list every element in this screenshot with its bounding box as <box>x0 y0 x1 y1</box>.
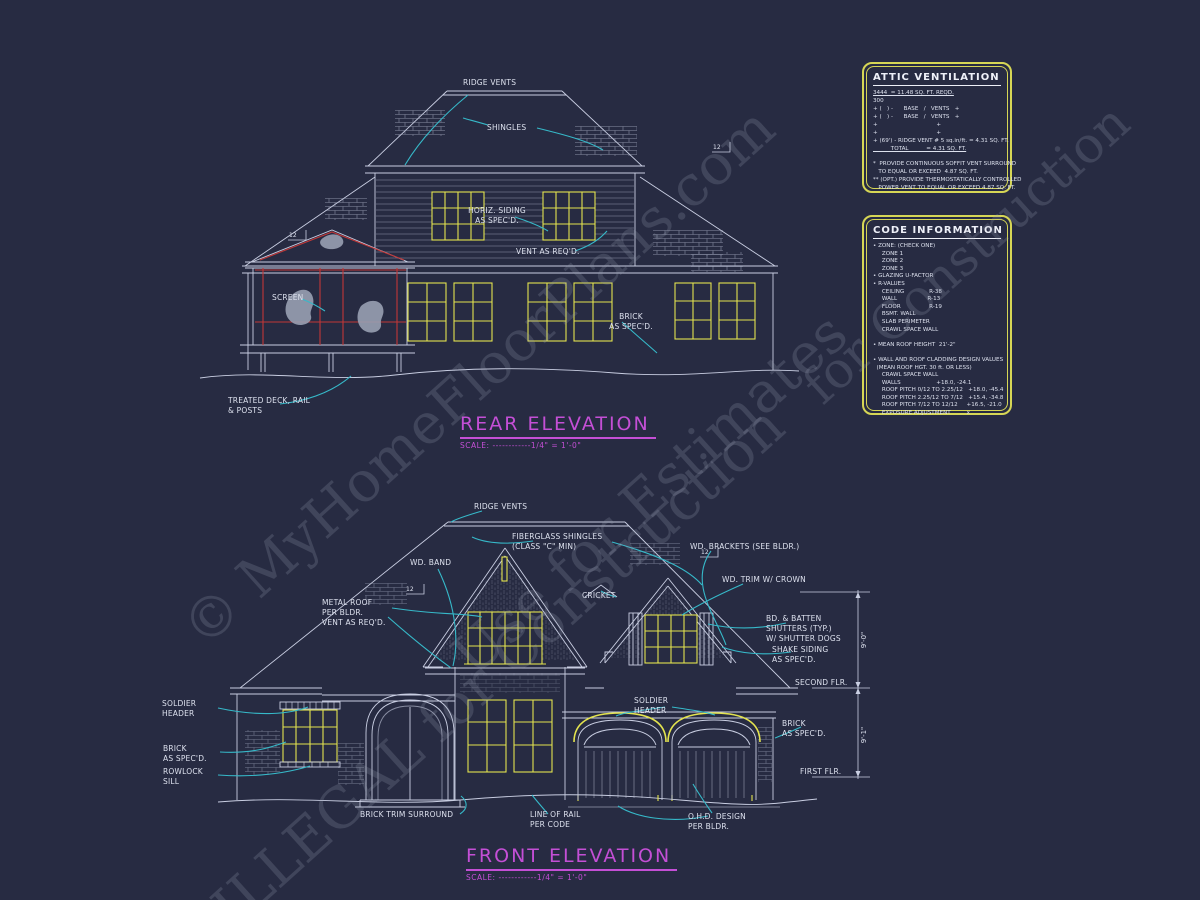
code-line: ROOF PITCH 7/12 TO 12/12 +16.5, -21.0 <box>873 402 1001 410</box>
rear-scale-text: SCALE: ------------1/4" = 1'-0" <box>460 441 656 450</box>
code-line: • R-VALUES <box>873 281 1001 289</box>
label-first-flr: FIRST FLR. <box>800 767 841 777</box>
label-ridge-vents-front: RIDGE VENTS <box>474 502 527 512</box>
dim-second-floor-height: 9'-0" <box>860 632 868 649</box>
attic-line: 3444 = 11.48 SQ. FT. REQD. <box>873 90 1001 98</box>
attic-line: ** (OPT.) PROVIDE THERMOSTATICALLY CONTR… <box>873 177 1001 185</box>
attic-line: + + <box>873 122 1001 130</box>
attic-line: * PROVIDE CONTINUOUS SOFFIT VENT SURROUN… <box>873 161 1001 169</box>
code-line: • GLAZING U-FACTOR <box>873 273 1001 281</box>
code-line: EXPOSURE ADJUSTMENT x <box>873 410 1001 418</box>
label-brick-left: BRICK AS SPEC'D. <box>163 744 207 764</box>
label-brick-trim: BRICK TRIM SURROUND <box>360 810 453 820</box>
label-second-flr: SECOND FLR. <box>795 678 847 688</box>
code-line: (MEAN ROOF HGT. 30 ft. OR LESS) <box>873 365 1001 373</box>
attic-ventilation-box: ATTIC VENTILATION 3444 = 11.48 SQ. FT. R… <box>862 62 1012 193</box>
pitch-label: 12 <box>289 232 297 239</box>
attic-line: TO EQUAL OR EXCEED 4.87 SQ. FT. <box>873 169 1001 177</box>
pitch-label: 12 <box>713 144 721 151</box>
blueprint-sheet: 12 12 RIDGE VENTS SHINGLES HORIZ. SIDING… <box>0 0 1200 900</box>
code-line: ROOF PITCH 2.25/12 TO 7/12 +15.4, -34.8 <box>873 395 1001 403</box>
pitch-label: 12 <box>406 586 414 593</box>
code-line: • WALL AND ROOF CLADDING DESIGN VALUES <box>873 357 1001 365</box>
attic-line: POWER VENT TO EQUAL OR EXCEED 4.87 SQ. F… <box>873 185 1001 193</box>
code-line: • MEAN ROOF HEIGHT 21'-2" <box>873 342 1001 350</box>
code-information-box: CODE INFORMATION • ZONE: (CHECK ONE) ZON… <box>862 215 1012 415</box>
label-bd-batten-shutters: BD. & BATTEN SHUTTERS (TYP.) W/ SHUTTER … <box>766 614 841 643</box>
front-title-text: FRONT ELEVATION <box>466 845 677 871</box>
attic-line: + (69') - RIDGE VENT # 5 sq.in/ft. = 4.3… <box>873 138 1001 146</box>
label-brick-rear: BRICK AS SPEC'D. <box>608 312 654 332</box>
attic-line: + ( ) - BASE / VENTS + <box>873 114 1001 122</box>
front-elevation-title-block: FRONT ELEVATION SCALE: ------------1/4" … <box>466 845 677 882</box>
code-line: FLOOR R-19 <box>873 304 1001 312</box>
attic-ventilation-lines: 3444 = 11.48 SQ. FT. REQD.300+ ( ) - BAS… <box>873 90 1001 193</box>
attic-ventilation-title: ATTIC VENTILATION <box>873 72 1001 86</box>
rear-elevation-title-block: REAR ELEVATION SCALE: ------------1/4" =… <box>460 413 656 450</box>
code-line: ZONE 1 <box>873 251 1001 259</box>
code-line: WALLS +18.0, -24.1 <box>873 380 1001 388</box>
label-fiberglass-shingles: FIBERGLASS SHINGLES (CLASS "C" MIN) <box>512 532 602 552</box>
label-cricket: CRICKET <box>582 591 616 601</box>
attic-line: + + <box>873 130 1001 138</box>
code-information-title: CODE INFORMATION <box>873 225 1001 239</box>
code-information-lines: • ZONE: (CHECK ONE) ZONE 1 ZONE 2 ZONE 3… <box>873 243 1001 418</box>
label-screen: SCREEN <box>272 293 304 303</box>
rear-elevation-drawing: 12 12 <box>185 70 815 415</box>
code-line: CEILING R-38 <box>873 289 1001 297</box>
label-ridge-vents: RIDGE VENTS <box>463 78 516 88</box>
code-line <box>873 349 1001 357</box>
code-information-inner: CODE INFORMATION • ZONE: (CHECK ONE) ZON… <box>866 219 1008 411</box>
label-brick-right: BRICK AS SPEC'D. <box>782 719 826 739</box>
label-metal-roof: METAL ROOF PER BLDR. VENT AS REQ'D. <box>322 598 386 627</box>
code-line: ZONE 2 <box>873 258 1001 266</box>
code-line: CRAWL SPACE WALL <box>873 327 1001 335</box>
label-shake-siding: SHAKE SIDING AS SPEC'D. <box>772 645 828 665</box>
code-line: ZONE 3 <box>873 266 1001 274</box>
attic-line: 300 <box>873 98 1001 106</box>
attic-ventilation-inner: ATTIC VENTILATION 3444 = 11.48 SQ. FT. R… <box>866 66 1008 189</box>
code-line: WALL R-13 <box>873 296 1001 304</box>
code-line: CRAWL SPACE WALL <box>873 372 1001 380</box>
label-horiz-siding: HORIZ. SIDING AS SPEC'D. <box>468 206 526 226</box>
label-line-of-rail: LINE OF RAIL PER CODE <box>530 810 581 830</box>
code-line <box>873 334 1001 342</box>
dim-first-floor-height: 9'-1" <box>860 727 868 744</box>
label-rowlock-sill: ROWLOCK SILL <box>163 767 203 787</box>
attic-line <box>873 154 1001 162</box>
label-ohd-design: O.H.D. DESIGN PER BLDR. <box>688 812 746 832</box>
code-line: ROOF PITCH 0/12 TO 2.25/12 +18.0, -45.4 <box>873 387 1001 395</box>
code-line: • ZONE: (CHECK ONE) <box>873 243 1001 251</box>
code-line: BSMT. WALL <box>873 311 1001 319</box>
label-soldier-header-left: SOLDIER HEADER <box>162 699 196 719</box>
front-scale-text: SCALE: ------------1/4" = 1'-0" <box>466 873 677 882</box>
label-wd-trim: WD. TRIM W/ CROWN <box>722 575 806 585</box>
attic-line: + ( ) - BASE / VENTS + <box>873 106 1001 114</box>
screen-shadow-shapes <box>286 234 384 332</box>
label-wd-band: WD. BAND <box>410 558 451 568</box>
label-soldier-header-mid: SOLDIER HEADER <box>634 696 668 716</box>
code-line: SLAB PERIMETER <box>873 319 1001 327</box>
rear-title-text: REAR ELEVATION <box>460 413 656 439</box>
label-shingles: SHINGLES <box>487 123 526 133</box>
label-wd-brackets: WD. BRACKETS (SEE BLDR.) <box>690 542 799 552</box>
label-treated-deck: TREATED DECK, RAIL & POSTS <box>228 396 310 416</box>
attic-line: TOTAL = 4.31 SQ. FT. <box>873 146 1001 154</box>
label-vent-reqd: VENT AS REQ'D. <box>516 247 580 257</box>
